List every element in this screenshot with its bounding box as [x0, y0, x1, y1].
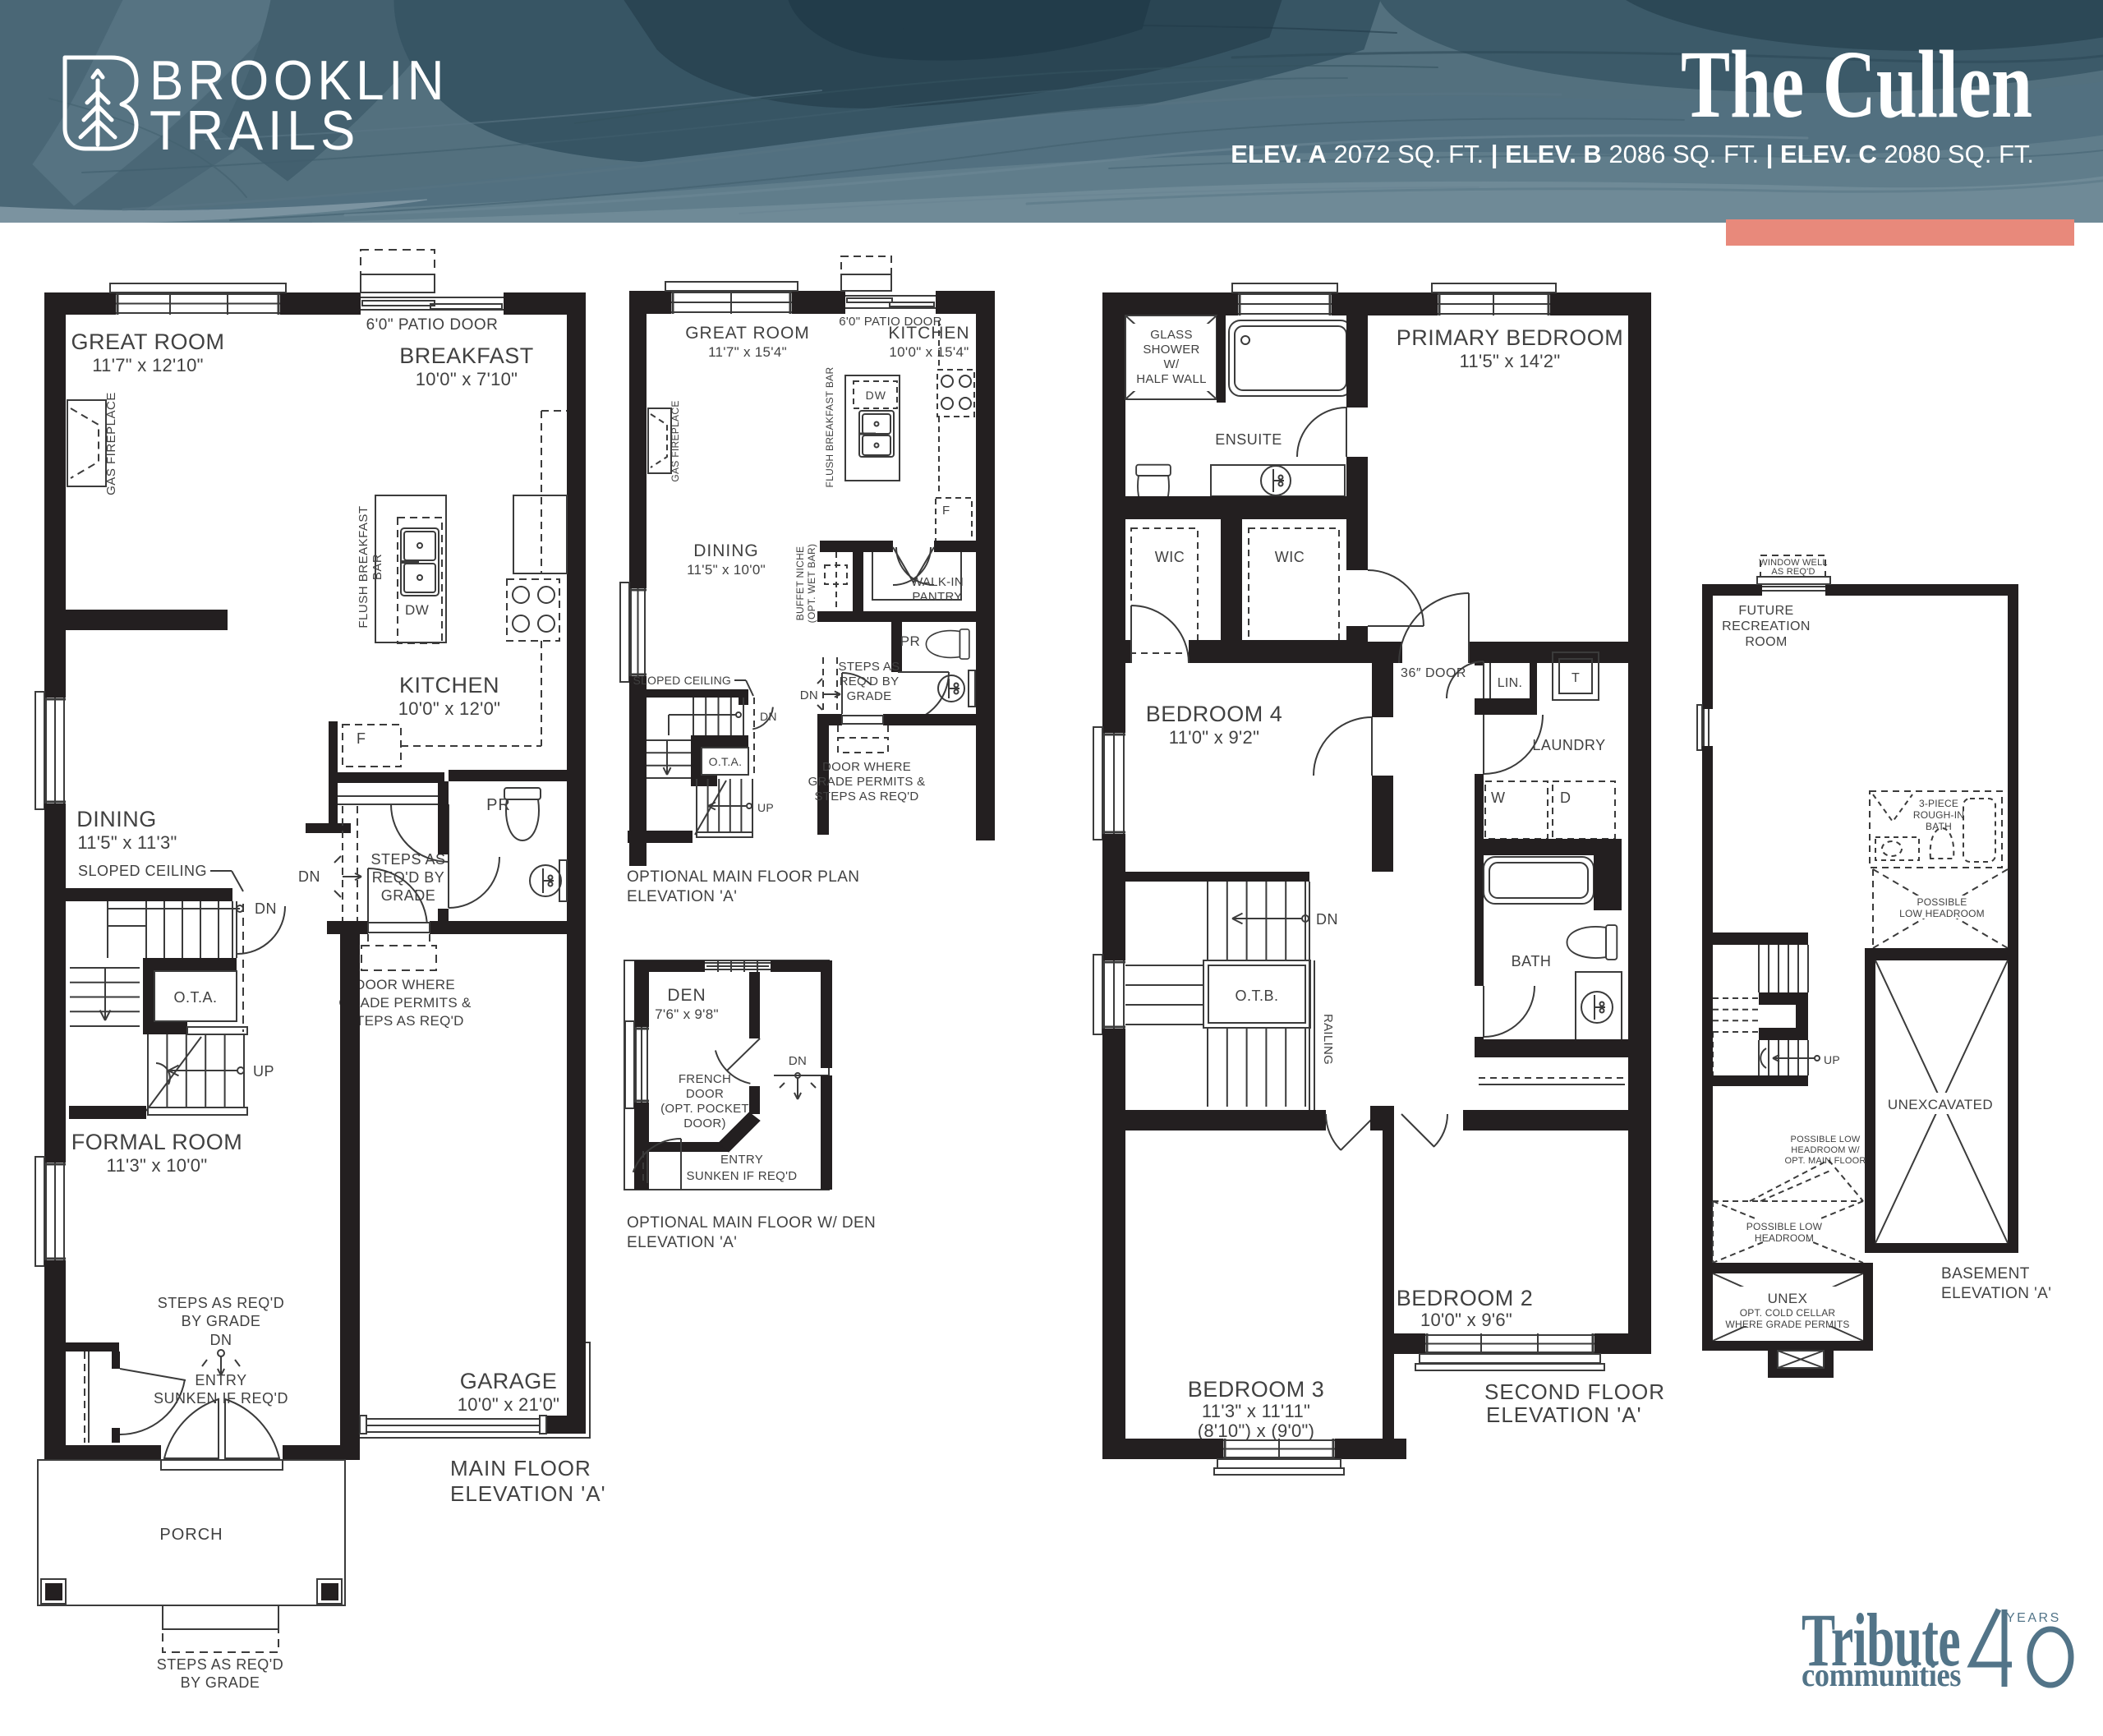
svg-text:BAR: BAR — [370, 554, 384, 580]
svg-text:GRADE: GRADE — [847, 689, 892, 703]
svg-text:O.T.B.: O.T.B. — [1235, 988, 1278, 1004]
svg-text:O.T.A.: O.T.A. — [709, 755, 743, 768]
svg-text:DN: DN — [1316, 911, 1338, 928]
svg-text:communities: communities — [1802, 1656, 1961, 1693]
svg-text:T: T — [1571, 671, 1580, 685]
svg-text:LAUNDRY: LAUNDRY — [1532, 737, 1605, 753]
svg-text:10'0" x 12'0": 10'0" x 12'0" — [398, 698, 501, 719]
svg-text:DOOR WHERE: DOOR WHERE — [355, 977, 455, 992]
svg-text:AS REQ'D: AS REQ'D — [1771, 567, 1815, 577]
svg-text:ENTRY: ENTRY — [195, 1372, 246, 1388]
svg-text:ELEVATION 'A': ELEVATION 'A' — [1941, 1285, 2051, 1302]
svg-text:BEDROOM 2: BEDROOM 2 — [1397, 1286, 1534, 1310]
svg-text:D: D — [1560, 790, 1571, 806]
svg-text:DW: DW — [405, 602, 429, 618]
svg-text:KITCHEN: KITCHEN — [888, 324, 969, 343]
svg-text:GAS FIREPLACE: GAS FIREPLACE — [104, 392, 118, 495]
svg-text:SUNKEN IF REQ'D: SUNKEN IF REQ'D — [154, 1390, 288, 1407]
svg-text:DINING: DINING — [693, 541, 759, 560]
svg-text:(8'10") x (9'0"): (8'10") x (9'0") — [1198, 1421, 1315, 1441]
svg-text:OPTIONAL MAIN FLOOR W/ DEN: OPTIONAL MAIN FLOOR W/ DEN — [627, 1214, 876, 1232]
svg-text:ENSUITE: ENSUITE — [1215, 431, 1282, 448]
svg-text:The Cullen: The Cullen — [1681, 30, 2032, 138]
svg-text:GRADE PERMITS &: GRADE PERMITS & — [808, 775, 926, 789]
svg-text:ROOM: ROOM — [1745, 635, 1787, 649]
svg-text:GARAGE: GARAGE — [460, 1369, 558, 1393]
svg-text:BY GRADE: BY GRADE — [181, 1674, 260, 1691]
svg-text:YEARS: YEARS — [2006, 1611, 2061, 1625]
svg-text:PANTRY: PANTRY — [912, 590, 962, 604]
svg-text:GREAT ROOM: GREAT ROOM — [685, 324, 810, 343]
svg-text:PORCH: PORCH — [159, 1526, 223, 1544]
svg-text:PR: PR — [486, 796, 511, 814]
svg-text:KITCHEN: KITCHEN — [399, 673, 499, 698]
svg-text:PR: PR — [900, 633, 921, 649]
svg-text:BUFFET NICHE: BUFFET NICHE — [794, 546, 806, 621]
svg-text:UNEXCAVATED: UNEXCAVATED — [1888, 1097, 1993, 1112]
svg-text:RAILING: RAILING — [1321, 1014, 1335, 1065]
svg-text:DINING: DINING — [76, 807, 157, 831]
svg-text:10'0" x 21'0": 10'0" x 21'0" — [458, 1394, 560, 1415]
svg-text:F: F — [357, 730, 366, 747]
svg-text:BY GRADE: BY GRADE — [182, 1313, 261, 1329]
svg-text:GAS FIREPLACE: GAS FIREPLACE — [670, 400, 681, 481]
svg-text:TRAILS: TRAILS — [150, 99, 360, 162]
svg-text:OPTIONAL MAIN FLOOR PLAN: OPTIONAL MAIN FLOOR PLAN — [627, 868, 859, 886]
svg-text:WHERE GRADE PERMITS: WHERE GRADE PERMITS — [1725, 1319, 1849, 1330]
svg-text:WIC: WIC — [1275, 549, 1305, 565]
svg-text:10'0" x 7'10": 10'0" x 7'10" — [416, 369, 518, 389]
svg-text:11'5" x 14'2": 11'5" x 14'2" — [1460, 351, 1561, 371]
svg-text:SLOPED CEILING: SLOPED CEILING — [633, 674, 731, 687]
svg-text:10'0" x 9'6": 10'0" x 9'6" — [1420, 1310, 1512, 1330]
svg-text:11'5" x 11'3": 11'5" x 11'3" — [77, 832, 177, 853]
svg-text:GLASS: GLASS — [1150, 328, 1193, 342]
svg-text:MAIN FLOOR: MAIN FLOOR — [450, 1456, 591, 1480]
svg-text:FRENCH: FRENCH — [679, 1072, 731, 1086]
svg-text:POSSIBLE LOW: POSSIBLE LOW — [1791, 1135, 1861, 1144]
svg-text:SHOWER: SHOWER — [1143, 343, 1199, 357]
svg-text:11'7" x 12'10": 11'7" x 12'10" — [92, 355, 203, 375]
svg-text:FLUSH BREAKFAST BAR: FLUSH BREAKFAST BAR — [824, 367, 835, 488]
svg-text:DN: DN — [789, 1054, 807, 1068]
svg-text:UP: UP — [253, 1063, 274, 1080]
svg-text:BASEMENT: BASEMENT — [1941, 1265, 2030, 1282]
svg-text:W/: W/ — [1164, 357, 1180, 371]
svg-text:STEPS AS REQ'D: STEPS AS REQ'D — [157, 1656, 283, 1673]
svg-text:11'7" x 15'4": 11'7" x 15'4" — [708, 344, 787, 360]
svg-text:OPT. COLD CELLAR: OPT. COLD CELLAR — [1740, 1307, 1836, 1319]
svg-text:11'3" x 10'0": 11'3" x 10'0" — [107, 1155, 208, 1176]
svg-text:HEADROOM W/: HEADROOM W/ — [1791, 1145, 1860, 1155]
svg-text:POSSIBLE LOW: POSSIBLE LOW — [1746, 1221, 1823, 1232]
svg-text:GRADE: GRADE — [381, 887, 436, 904]
svg-text:ELEVATION 'A': ELEVATION 'A' — [627, 1234, 737, 1251]
svg-text:3-PIECE: 3-PIECE — [1919, 798, 1958, 809]
svg-text:FORMAL ROOM: FORMAL ROOM — [71, 1130, 243, 1154]
svg-text:UP: UP — [757, 801, 774, 814]
svg-text:BEDROOM 3: BEDROOM 3 — [1188, 1377, 1325, 1402]
svg-text:ELEVATION 'A': ELEVATION 'A' — [1486, 1402, 1642, 1427]
svg-text:ELEV. A 2072 SQ. FT. | ELEV. B: ELEV. A 2072 SQ. FT. | ELEV. B 2086 SQ. … — [1231, 140, 2034, 168]
svg-text:UNEX: UNEX — [1768, 1291, 1808, 1306]
svg-text:O.T.A.: O.T.A. — [173, 989, 217, 1006]
svg-text:DOOR): DOOR) — [683, 1117, 726, 1130]
svg-text:(OPT. POCKET: (OPT. POCKET — [660, 1102, 749, 1116]
svg-text:DOOR WHERE: DOOR WHERE — [822, 760, 911, 774]
svg-text:HALF WALL: HALF WALL — [1136, 372, 1207, 386]
svg-text:RECREATION: RECREATION — [1722, 619, 1811, 633]
svg-text:DW: DW — [866, 389, 886, 402]
svg-text:REQ'D BY: REQ'D BY — [840, 675, 900, 688]
svg-text:WALK-IN: WALK-IN — [911, 575, 964, 589]
svg-text:F: F — [942, 504, 950, 518]
svg-text:BEDROOM 4: BEDROOM 4 — [1146, 702, 1283, 726]
svg-text:POSSIBLE: POSSIBLE — [1917, 896, 1967, 908]
svg-text:BREAKFAST: BREAKFAST — [399, 343, 534, 368]
svg-text:UP: UP — [1824, 1053, 1840, 1066]
svg-text:PRIMARY BEDROOM: PRIMARY BEDROOM — [1397, 325, 1624, 350]
svg-text:STEPS AS: STEPS AS — [370, 851, 445, 868]
svg-text:ENTRY: ENTRY — [720, 1153, 763, 1167]
svg-text:11'3" x 11'11": 11'3" x 11'11" — [1202, 1401, 1310, 1421]
svg-text:(OPT. WET BAR): (OPT. WET BAR) — [806, 544, 817, 624]
svg-text:REQ'D BY: REQ'D BY — [372, 869, 444, 886]
svg-text:10'0" x 15'4": 10'0" x 15'4" — [889, 344, 969, 360]
svg-text:LOW HEADROOM: LOW HEADROOM — [1899, 908, 1985, 919]
svg-text:STEPS AS REQ'D: STEPS AS REQ'D — [346, 1013, 464, 1029]
svg-text:7'6" x 9'8": 7'6" x 9'8" — [655, 1006, 719, 1022]
svg-text:GREAT ROOM: GREAT ROOM — [71, 329, 224, 354]
svg-text:FLUSH BREAKFAST: FLUSH BREAKFAST — [357, 505, 370, 628]
svg-text:SUNKEN IF REQ'D: SUNKEN IF REQ'D — [687, 1169, 798, 1183]
svg-text:DOOR: DOOR — [686, 1087, 724, 1101]
svg-text:DN: DN — [800, 688, 818, 702]
svg-text:SECOND FLOOR: SECOND FLOOR — [1484, 1379, 1665, 1404]
svg-text:ELEVATION 'A': ELEVATION 'A' — [450, 1481, 606, 1506]
svg-text:DN: DN — [760, 710, 777, 723]
svg-text:11'5" x 10'0": 11'5" x 10'0" — [687, 562, 766, 578]
svg-text:6'0" PATIO DOOR: 6'0" PATIO DOOR — [366, 316, 499, 334]
svg-text:ROUGH-IN: ROUGH-IN — [1913, 809, 1964, 821]
svg-text:BATH: BATH — [1512, 953, 1552, 969]
svg-text:DN: DN — [210, 1332, 232, 1348]
svg-text:OPT. MAIN FLOOR: OPT. MAIN FLOOR — [1785, 1156, 1866, 1166]
svg-text:W: W — [1491, 790, 1506, 806]
svg-text:ELEVATION 'A': ELEVATION 'A' — [627, 888, 737, 905]
svg-text:DN: DN — [298, 868, 320, 885]
svg-text:BATH: BATH — [1926, 821, 1952, 832]
svg-text:HEADROOM: HEADROOM — [1755, 1232, 1814, 1244]
svg-text:SLOPED CEILING: SLOPED CEILING — [78, 863, 207, 879]
svg-text:11'0" x 9'2": 11'0" x 9'2" — [1169, 727, 1259, 748]
svg-text:DN: DN — [255, 900, 277, 917]
svg-text:STEPS AS REQ'D: STEPS AS REQ'D — [814, 790, 918, 804]
svg-text:STEPS AS REQ'D: STEPS AS REQ'D — [158, 1295, 284, 1311]
svg-text:LIN.: LIN. — [1498, 676, 1523, 690]
svg-text:FUTURE: FUTURE — [1738, 604, 1793, 618]
svg-text:STEPS AS: STEPS AS — [839, 660, 900, 674]
svg-text:DEN: DEN — [667, 986, 706, 1005]
svg-text:WIC: WIC — [1155, 549, 1185, 565]
